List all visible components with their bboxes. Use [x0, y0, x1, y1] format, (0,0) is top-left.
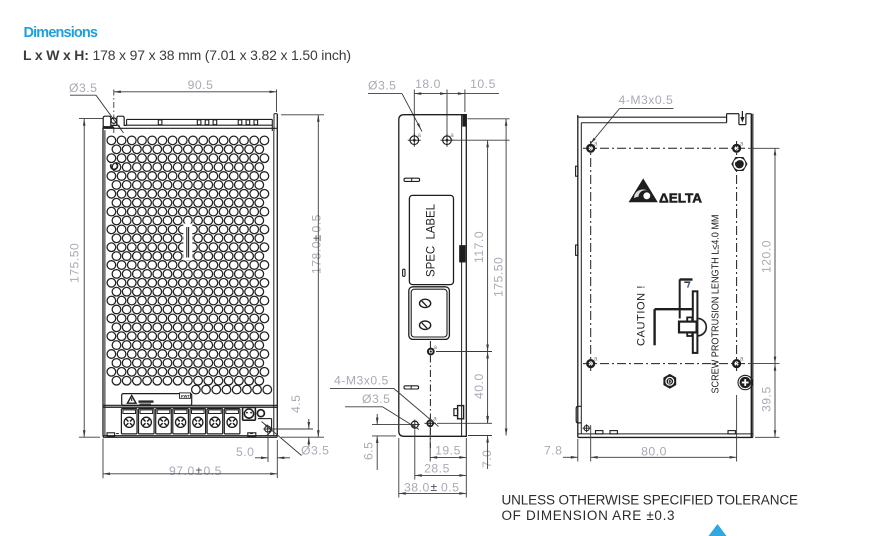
svg-text:a: a	[594, 356, 598, 363]
svg-text:SPEC LABEL: SPEC LABEL	[426, 203, 438, 277]
svg-text:±: ±	[310, 235, 324, 242]
svg-text:a: a	[740, 356, 744, 363]
svg-text:0.5: 0.5	[204, 464, 222, 478]
svg-text:Ø3.5: Ø3.5	[362, 392, 390, 406]
svg-text:D: D	[668, 380, 672, 386]
svg-text:ΔELTA: ΔELTA	[659, 190, 703, 205]
svg-text:0.5: 0.5	[441, 481, 459, 495]
svg-text:117.0: 117.0	[472, 231, 486, 263]
svg-text:18.0: 18.0	[415, 77, 441, 91]
svg-text:a: a	[418, 132, 422, 139]
svg-text:a: a	[450, 132, 454, 139]
svg-text:4-M3x0.5: 4-M3x0.5	[334, 374, 389, 388]
svg-text:175.50: 175.50	[492, 257, 506, 297]
svg-text:120.0: 120.0	[759, 240, 773, 273]
svg-text:a: a	[594, 140, 598, 147]
svg-text:19.5: 19.5	[435, 444, 461, 458]
svg-text:4-M3x0.5: 4-M3x0.5	[619, 93, 674, 107]
svg-text:40.0: 40.0	[472, 373, 486, 399]
svg-text:28.5: 28.5	[424, 462, 450, 476]
svg-text:CAUTION !: CAUTION !	[636, 285, 648, 346]
svg-text:Ø3.5: Ø3.5	[69, 81, 97, 95]
svg-text:10.5: 10.5	[470, 77, 496, 91]
svg-text:Ø3.5: Ø3.5	[301, 444, 329, 458]
svg-text:±: ±	[431, 480, 438, 494]
svg-text:178.0: 178.0	[310, 241, 324, 274]
svg-text:6.5: 6.5	[362, 442, 376, 460]
svg-text:SCREW PROTRUSION LENGTH L≤4.0: SCREW PROTRUSION LENGTH L≤4.0 MM	[711, 215, 722, 394]
svg-text:L x W x H: 178 x 97 x 38 mm (7: L x W x H: 178 x 97 x 38 mm (7.01 x 3.82…	[23, 47, 351, 63]
svg-text:97.0: 97.0	[169, 464, 195, 478]
svg-text:80.0: 80.0	[641, 445, 667, 459]
svg-text:175.50: 175.50	[68, 243, 82, 283]
svg-text:Ø3.5: Ø3.5	[368, 79, 396, 93]
svg-text:a: a	[740, 140, 744, 147]
svg-text:0.5: 0.5	[310, 214, 324, 232]
svg-text:a: a	[433, 416, 437, 423]
svg-text:5.0: 5.0	[236, 445, 254, 459]
svg-text:PWT: PWT	[181, 393, 190, 398]
svg-text:7.8: 7.8	[544, 444, 562, 458]
svg-text:38.0: 38.0	[404, 481, 430, 495]
svg-text:a: a	[434, 344, 438, 351]
svg-text:4.5: 4.5	[289, 395, 303, 413]
svg-text:Dimensions: Dimensions	[24, 25, 99, 41]
svg-text:±: ±	[196, 464, 203, 478]
svg-text:UNLESS OTHERWISE SPECIFIED TOL: UNLESS OTHERWISE SPECIFIED TOLERANCE	[502, 493, 799, 508]
svg-text:90.5: 90.5	[188, 78, 214, 92]
svg-text:39.5: 39.5	[759, 386, 773, 412]
svg-text:7.0: 7.0	[480, 450, 494, 468]
svg-text:OF DIMENSION ARE ±0.3: OF DIMENSION ARE ±0.3	[502, 508, 675, 523]
